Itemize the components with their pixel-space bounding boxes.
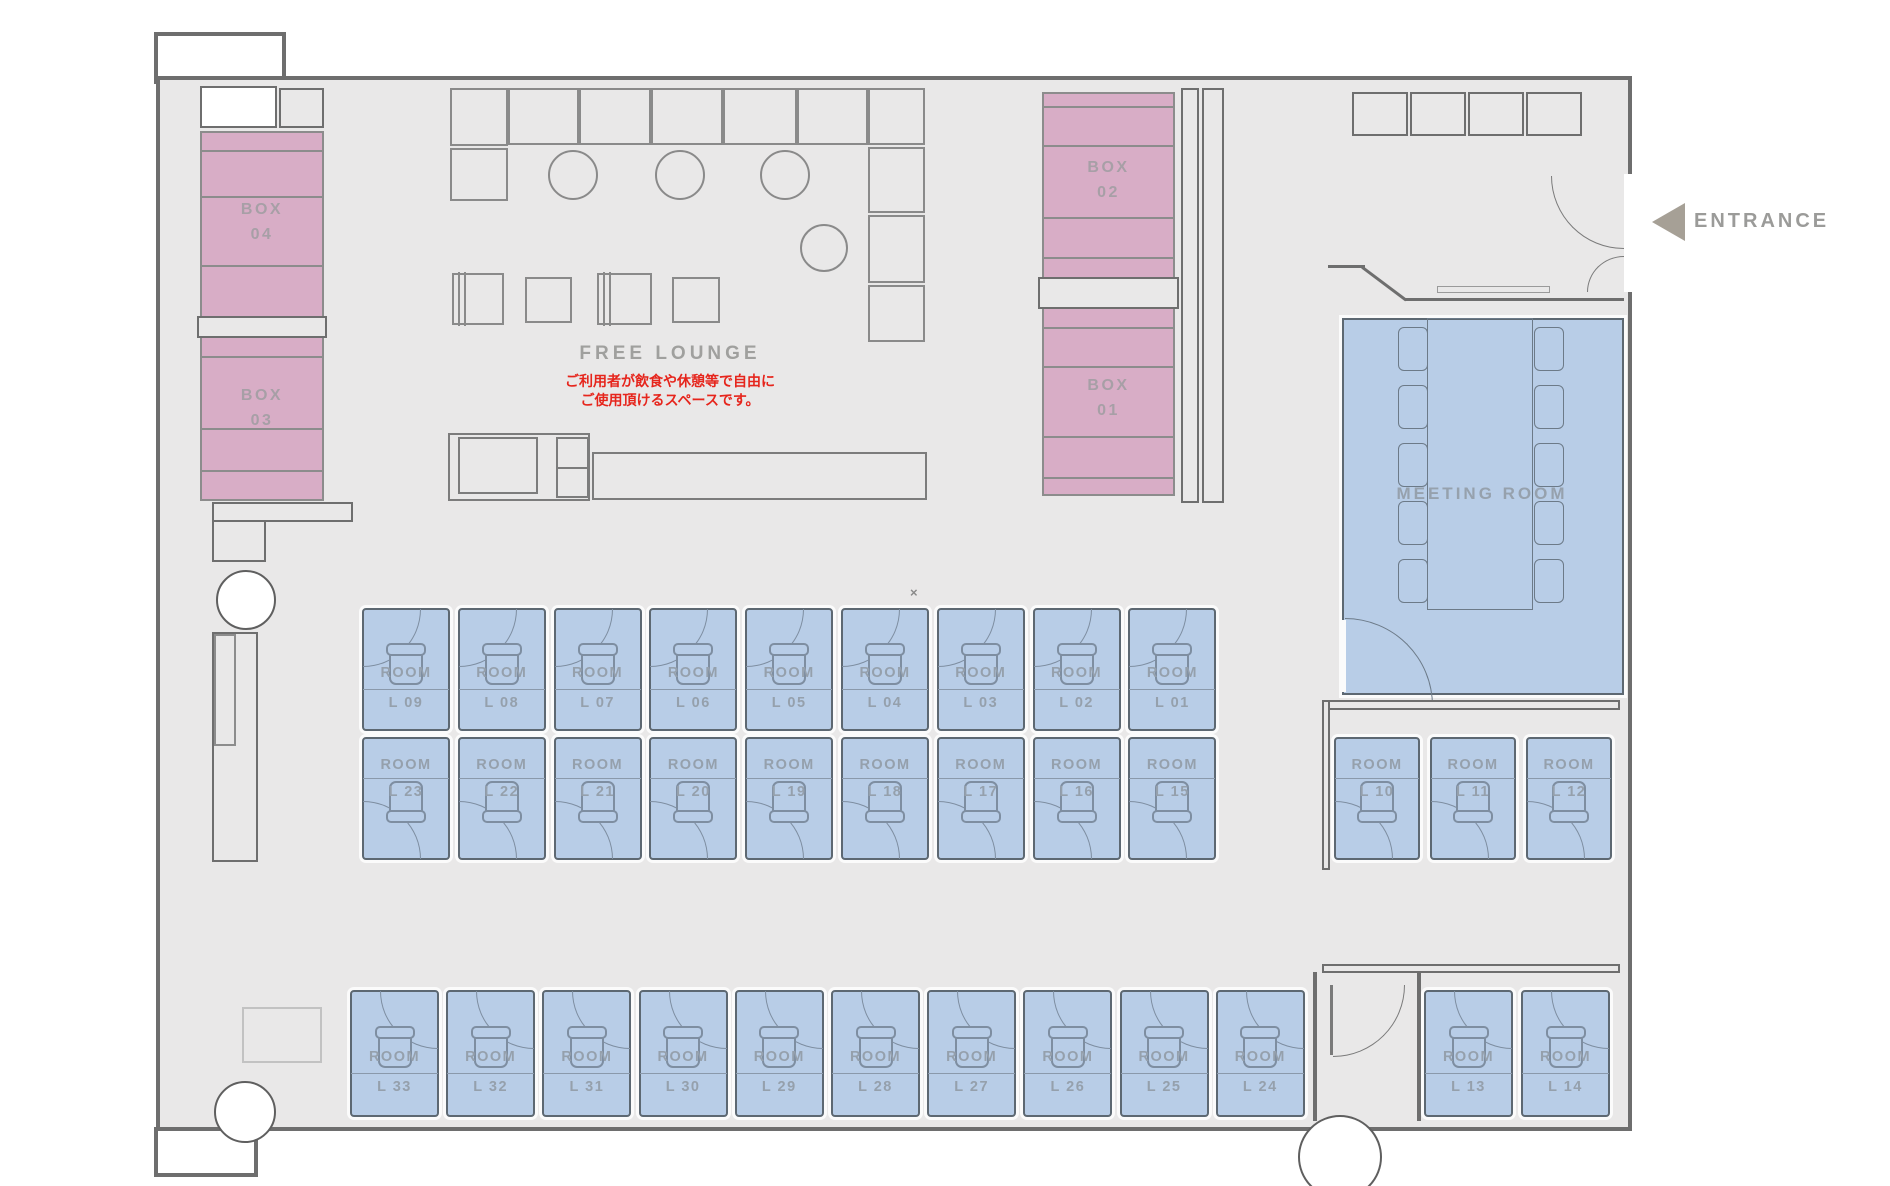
floor-mat [242,1007,322,1063]
room-L-23: ROOML 23 [362,737,450,860]
meeting-chair-icon [1534,501,1564,545]
room-word: ROOM [1130,757,1214,773]
side-table [525,277,572,323]
wall-segment-vertical [1322,700,1330,870]
room-number: L 30 [641,1079,726,1095]
room-L-17: ROOML 17 [937,737,1025,860]
desk-line [1425,1073,1512,1074]
room-L-10: ROOML 10 [1334,737,1420,860]
box-divider [200,470,324,472]
locker [1352,92,1408,136]
sofa-segment [868,285,925,342]
room-number: L 09 [364,695,448,711]
room-word: ROOM [641,1049,726,1065]
room-number: L 31 [544,1079,629,1095]
box-02-label: BOX 02 [1042,156,1175,206]
room-number: L 07 [556,695,640,711]
room-number: L 24 [1218,1079,1303,1095]
room-word: ROOM [556,665,640,681]
desk-line [555,778,641,779]
box-02-number: 02 [1042,181,1175,206]
desk-line [746,689,832,690]
meeting-chair-icon [1398,327,1428,371]
room-number: L 28 [833,1079,918,1095]
sofa-segment [868,88,925,145]
free-lounge-note-line2: ご使用頂けるスペースです。 [520,391,820,410]
sofa-segment [868,147,925,213]
room-word: ROOM [556,757,640,773]
desk-line [459,778,545,779]
meeting-chair-icon [1534,327,1564,371]
meeting-chair-icon [1398,385,1428,429]
desk-line [650,778,736,779]
room-word: ROOM [833,1049,918,1065]
room-L-19: ROOML 19 [745,737,833,860]
meeting-chair-icon [1534,385,1564,429]
room-L-31: ROOML 31 [542,990,631,1117]
room-L-27: ROOML 27 [927,990,1016,1117]
room-number: L 18 [843,784,927,800]
room-word: ROOM [1025,1049,1110,1065]
wall-step-a [212,502,353,522]
box-divider [200,150,324,152]
room-number: L 10 [1336,784,1418,800]
locker [1410,92,1466,136]
wall-below-meeting-room [1322,700,1620,710]
desk-line [363,778,449,779]
room-L-03: ROOML 03 [937,608,1025,731]
room-word: ROOM [1523,1049,1608,1065]
sofa-segment [579,88,651,145]
meeting-chair-icon [1398,559,1428,603]
desk-line [1431,778,1515,779]
room-number: L 33 [352,1079,437,1095]
desk-line [555,689,641,690]
box-divider [1042,217,1175,219]
room-L-29: ROOML 29 [735,990,824,1117]
free-lounge-note-line1: ご利用者が飲食や休憩等で自由に [520,372,820,391]
free-lounge-title: FREE LOUNGE [560,343,780,365]
meeting-chair-icon [1534,559,1564,603]
desk-line [1034,689,1120,690]
desk-line [736,1073,823,1074]
sofa-segment [797,88,868,145]
room-L-13: ROOML 13 [1424,990,1513,1117]
room-L-09: ROOML 09 [362,608,450,731]
floor-plan: ENTRANCE BOX 04 BOX 03 [0,0,1890,1186]
structural-column [216,570,276,630]
room-word: ROOM [929,1049,1014,1065]
box-divider [200,356,324,358]
room-number: L 11 [1432,784,1514,800]
partition-strip [1181,88,1199,503]
desk-line [447,1073,534,1074]
room-number: L 21 [556,784,640,800]
room-number: L 01 [1130,695,1214,711]
room-number: L 08 [460,695,544,711]
room-number: L 26 [1025,1079,1110,1095]
room-word: ROOM [1432,757,1514,773]
room-L-06: ROOML 06 [649,608,737,731]
desk-line [842,778,928,779]
meeting-chair-icon [1398,501,1428,545]
wall-above-rooms-13-14 [1322,964,1620,973]
room-L-04: ROOML 04 [841,608,929,731]
sofa-segment [723,88,797,145]
entrance-arrow-icon [1652,203,1685,241]
long-counter [592,452,927,500]
room-L-25: ROOML 25 [1120,990,1209,1117]
room-L-14: ROOML 14 [1521,990,1610,1117]
room-L-21: ROOML 21 [554,737,642,860]
room-L-18: ROOML 18 [841,737,929,860]
room-word: ROOM [843,665,927,681]
room-L-15: ROOML 15 [1128,737,1216,860]
corridor-wall-right [1417,972,1421,1121]
box-01-number: 01 [1042,399,1175,424]
box-divider [1042,145,1175,147]
room-word: ROOM [364,665,448,681]
desk-line [1522,1073,1609,1074]
desk-line [543,1073,630,1074]
box-01-word: BOX [1042,374,1175,399]
free-lounge-note: ご利用者が飲食や休憩等で自由に ご使用頂けるスペースです。 [520,372,820,410]
round-table [655,150,705,200]
room-word: ROOM [1130,665,1214,681]
round-table [760,150,810,200]
room-number: L 16 [1035,784,1119,800]
room-word: ROOM [544,1049,629,1065]
room-number: L 29 [737,1079,822,1095]
kitchen-sink [458,437,538,494]
room-number: L 02 [1035,695,1119,711]
box-column-separator [197,316,327,338]
sofa-segment [508,88,579,145]
structural-column [214,1081,276,1143]
box-column-separator [1038,277,1179,309]
wall-segment [1328,265,1365,268]
desk-line [1034,778,1120,779]
box-divider [1042,477,1175,479]
room-L-05: ROOML 05 [745,608,833,731]
room-L-30: ROOML 30 [639,990,728,1117]
room-L-33: ROOML 33 [350,990,439,1117]
partition-strip [1202,88,1224,503]
box-divider [1042,436,1175,438]
room-word: ROOM [939,757,1023,773]
box-02-word: BOX [1042,156,1175,181]
room-word: ROOM [747,757,831,773]
box-03-number: 03 [200,409,324,434]
room-word: ROOM [651,757,735,773]
wall-step-b [212,520,266,562]
entrance-opening [1624,174,1636,292]
desk-line [746,778,832,779]
desk-line [351,1073,438,1074]
room-L-24: ROOML 24 [1216,990,1305,1117]
room-word: ROOM [1528,757,1610,773]
room-L-20: ROOML 20 [649,737,737,860]
box-column-gray-cell [279,88,324,128]
wall-board [1437,286,1550,293]
room-word: ROOM [448,1049,533,1065]
room-number: L 14 [1523,1079,1608,1095]
box-divider [1042,327,1175,329]
room-word: ROOM [1035,665,1119,681]
room-number: L 05 [747,695,831,711]
desk-line [1024,1073,1111,1074]
room-number: L 04 [843,695,927,711]
box-01-label: BOX 01 [1042,374,1175,424]
room-number: L 12 [1528,784,1610,800]
room-word: ROOM [1122,1049,1207,1065]
desk-line [938,689,1024,690]
room-number: L 22 [460,784,544,800]
room-number: L 20 [651,784,735,800]
desk-line [1217,1073,1304,1074]
desk-line [1527,778,1611,779]
box-divider [200,265,324,267]
sofa-segment [450,88,508,146]
room-number: L 13 [1426,1079,1511,1095]
room-L-22: ROOML 22 [458,737,546,860]
room-L-32: ROOML 32 [446,990,535,1117]
desk-line [1335,778,1419,779]
room-word: ROOM [651,665,735,681]
room-L-02: ROOML 02 [1033,608,1121,731]
room-word: ROOM [747,665,831,681]
entrance-label: ENTRANCE [1694,210,1829,233]
room-number: L 06 [651,695,735,711]
desk-line [650,689,736,690]
sofa-segment [868,215,925,283]
room-word: ROOM [843,757,927,773]
x-mark: × [910,585,918,600]
room-word: ROOM [737,1049,822,1065]
room-number: L 03 [939,695,1023,711]
room-L-12: ROOML 12 [1526,737,1612,860]
box-04-number: 04 [200,223,324,248]
meeting-chair-icon [1534,443,1564,487]
desk-line [928,1073,1015,1074]
room-word: ROOM [460,757,544,773]
room-L-07: ROOML 07 [554,608,642,731]
room-number: L 27 [929,1079,1014,1095]
room-word: ROOM [1336,757,1418,773]
wall-segment [1405,298,1624,301]
desk-line [1121,1073,1208,1074]
round-table [800,224,848,272]
desk-line [938,778,1024,779]
desk-line [1129,689,1215,690]
room-word: ROOM [939,665,1023,681]
room-number: L 17 [939,784,1023,800]
meeting-room-label: MEETING ROOM [1362,484,1602,504]
box-03-label: BOX 03 [200,384,324,434]
box-04-word: BOX [200,198,324,223]
corridor-wall-left [1313,972,1317,1121]
desk-line [832,1073,919,1074]
wall-pier-inner [214,634,236,746]
room-L-26: ROOML 26 [1023,990,1112,1117]
meeting-chair-icon [1398,443,1428,487]
room-word: ROOM [1218,1049,1303,1065]
room-word: ROOM [1035,757,1119,773]
box-column-white-cell [200,86,277,128]
sofa-segment [651,88,723,145]
desk-line [363,689,449,690]
box-04-label: BOX 04 [200,198,324,248]
box-divider [1042,106,1175,108]
room-number: L 32 [448,1079,533,1095]
room-L-01: ROOML 01 [1128,608,1216,731]
room-L-28: ROOML 28 [831,990,920,1117]
armchair [452,273,504,325]
room-word: ROOM [352,1049,437,1065]
room-number: L 23 [364,784,448,800]
room-number: L 15 [1130,784,1214,800]
locker [1526,92,1582,136]
room-word: ROOM [364,757,448,773]
kitchen-unit-divider [557,467,588,469]
room-number: L 19 [747,784,831,800]
box-divider [1042,366,1175,368]
room-word: ROOM [460,665,544,681]
armchair [597,273,652,325]
box-03-word: BOX [200,384,324,409]
sofa-segment [450,148,508,201]
room-L-08: ROOML 08 [458,608,546,731]
box-divider [1042,257,1175,259]
desk-line [640,1073,727,1074]
desk-line [842,689,928,690]
round-table [548,150,598,200]
desk-line [459,689,545,690]
room-word: ROOM [1426,1049,1511,1065]
room-L-11: ROOML 11 [1430,737,1516,860]
side-table [672,277,720,323]
room-number: L 25 [1122,1079,1207,1095]
desk-line [1129,778,1215,779]
locker [1468,92,1524,136]
room-L-16: ROOML 16 [1033,737,1121,860]
